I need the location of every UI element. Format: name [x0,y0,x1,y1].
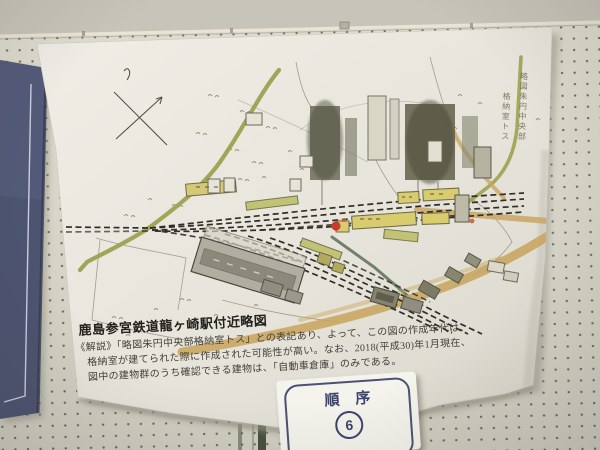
order-number: 6 [334,410,364,440]
photo-of-map-poster: 略図朱円中央部 格納室トス 鹿島参宮鉄道龍ヶ崎駅付近略図 《解説》「略図朱円中央… [0,0,600,450]
order-card: 順序 6 [276,371,421,450]
order-card-label: 順序 [324,385,387,410]
blue-poster [0,60,51,423]
order-card-border: 順序 6 [283,377,414,450]
